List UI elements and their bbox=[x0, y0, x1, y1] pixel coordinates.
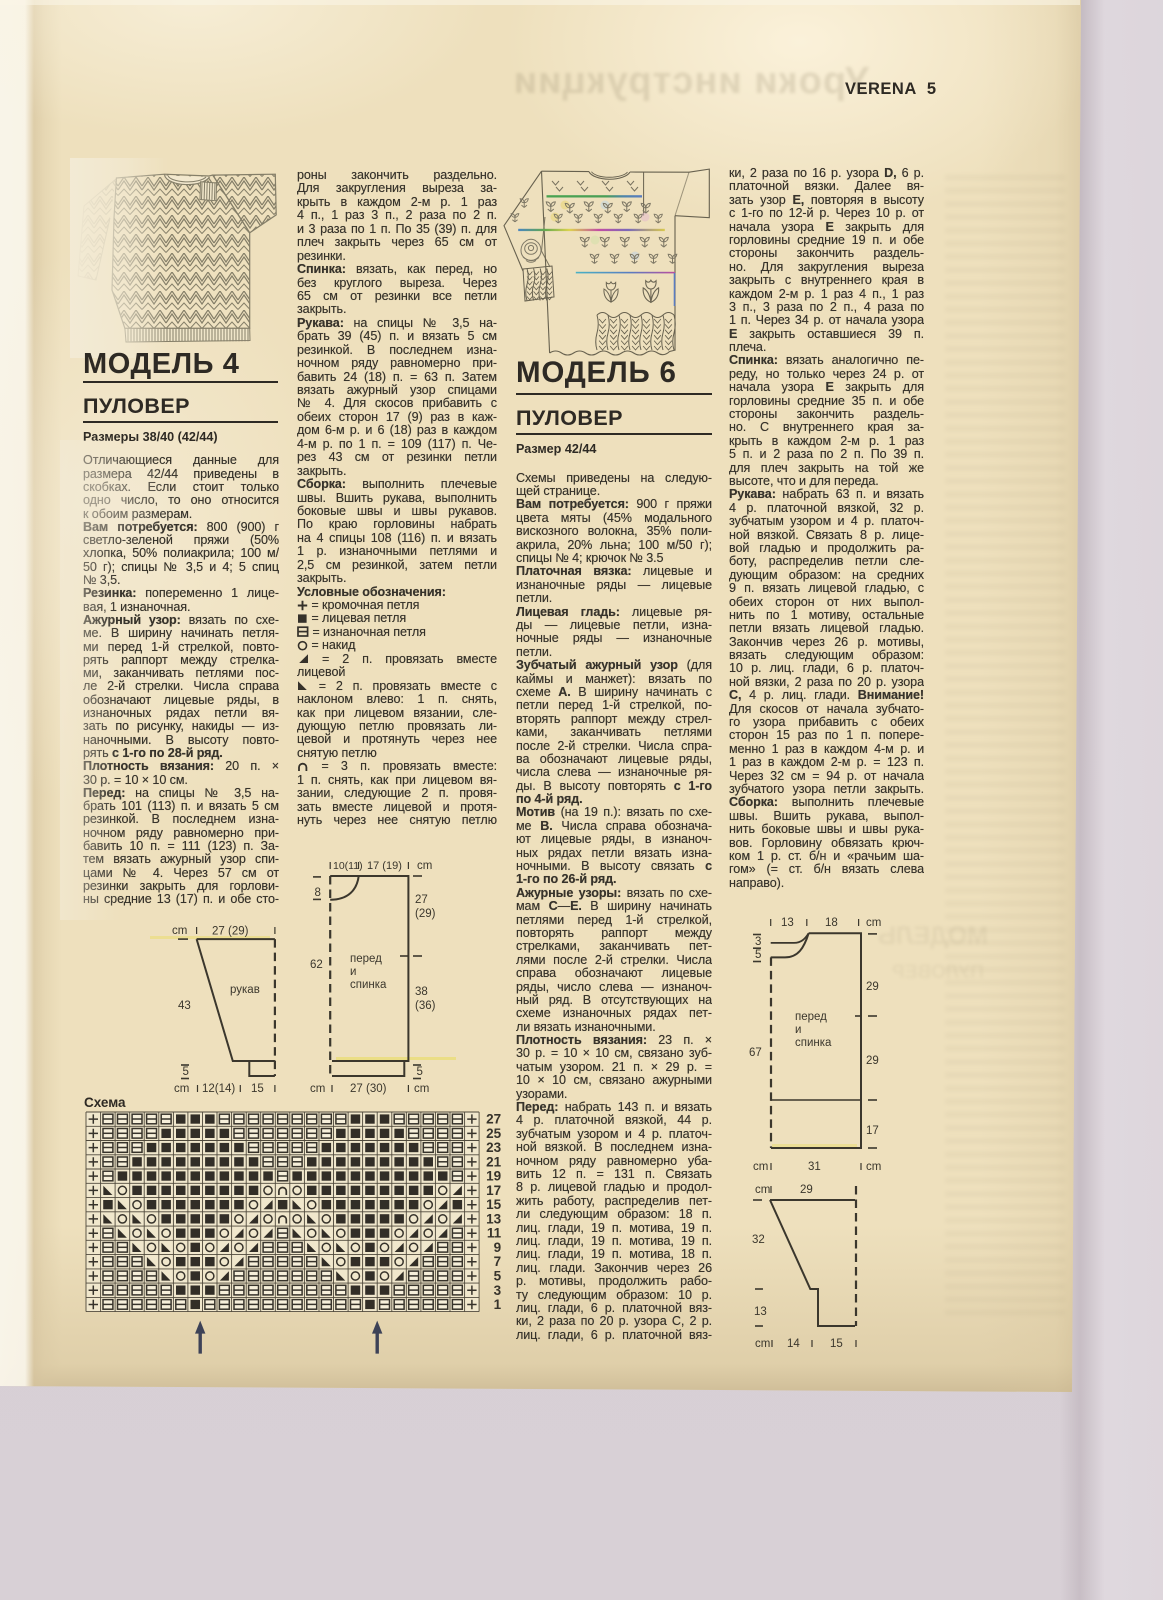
svg-text:рукав: рукав bbox=[230, 984, 260, 996]
svg-text:5: 5 bbox=[494, 1269, 502, 1284]
svg-text:5: 5 bbox=[183, 1066, 189, 1078]
svg-text:14: 14 bbox=[787, 1338, 800, 1350]
svg-text:cm: cm bbox=[753, 1161, 768, 1173]
svg-text:7: 7 bbox=[494, 1255, 502, 1270]
svg-text:27: 27 bbox=[486, 1112, 501, 1127]
svg-text:cm: cm bbox=[417, 860, 432, 872]
svg-text:перед: перед bbox=[795, 1011, 827, 1023]
svg-text:11: 11 bbox=[487, 1226, 502, 1241]
svg-text:1: 1 bbox=[494, 1297, 502, 1312]
svg-text:21: 21 bbox=[486, 1155, 502, 1170]
svg-text:cm: cm bbox=[172, 925, 187, 937]
svg-text:19: 19 bbox=[486, 1169, 501, 1184]
svg-text:5: 5 bbox=[755, 949, 761, 961]
svg-text:5: 5 bbox=[417, 1066, 423, 1078]
svg-text:cm: cm bbox=[866, 917, 881, 929]
svg-text:cm: cm bbox=[174, 1083, 189, 1095]
svg-text:12(14): 12(14) bbox=[202, 1083, 235, 1095]
svg-text:38: 38 bbox=[415, 986, 428, 998]
svg-text:29: 29 bbox=[800, 1184, 813, 1196]
svg-text:27 (29): 27 (29) bbox=[212, 926, 249, 938]
svg-text:3: 3 bbox=[755, 936, 761, 948]
svg-text:23: 23 bbox=[486, 1140, 502, 1155]
svg-text:8: 8 bbox=[315, 887, 321, 899]
svg-text:62: 62 bbox=[310, 959, 323, 971]
svg-text:17 (19): 17 (19) bbox=[367, 860, 402, 872]
svg-text:cm: cm bbox=[755, 1338, 770, 1350]
svg-text:cm: cm bbox=[310, 1083, 325, 1095]
svg-text:67: 67 bbox=[749, 1047, 762, 1059]
svg-text:15: 15 bbox=[830, 1338, 843, 1350]
svg-text:(36): (36) bbox=[415, 1000, 436, 1012]
svg-text:29: 29 bbox=[866, 1055, 879, 1067]
svg-text:cm: cm bbox=[755, 1184, 770, 1196]
svg-text:43: 43 bbox=[178, 1000, 191, 1012]
svg-text:15: 15 bbox=[251, 1083, 264, 1095]
svg-text:18: 18 bbox=[825, 917, 838, 929]
svg-text:и: и bbox=[350, 966, 356, 978]
svg-text:спинка: спинка bbox=[795, 1037, 832, 1049]
svg-text:13: 13 bbox=[486, 1212, 502, 1227]
svg-text:17: 17 bbox=[486, 1183, 501, 1198]
svg-text:17: 17 bbox=[866, 1125, 879, 1137]
svg-text:13: 13 bbox=[754, 1306, 767, 1318]
svg-text:32: 32 bbox=[752, 1234, 765, 1246]
svg-text:cm: cm bbox=[866, 1161, 881, 1173]
svg-text:перед: перед bbox=[350, 953, 382, 965]
svg-text:31: 31 bbox=[808, 1161, 821, 1173]
svg-text:25: 25 bbox=[486, 1126, 502, 1141]
svg-text:(29): (29) bbox=[415, 908, 436, 920]
svg-text:и: и bbox=[795, 1024, 801, 1036]
svg-text:13: 13 bbox=[781, 917, 794, 929]
svg-text:27: 27 bbox=[415, 894, 428, 906]
svg-text:cm: cm bbox=[414, 1083, 429, 1095]
svg-text:27 (30): 27 (30) bbox=[350, 1083, 387, 1095]
svg-text:3: 3 bbox=[494, 1283, 502, 1298]
svg-text:спинка: спинка bbox=[350, 979, 387, 991]
svg-text:29: 29 bbox=[866, 981, 879, 993]
svg-text:15: 15 bbox=[486, 1198, 502, 1213]
svg-text:9: 9 bbox=[494, 1240, 502, 1255]
